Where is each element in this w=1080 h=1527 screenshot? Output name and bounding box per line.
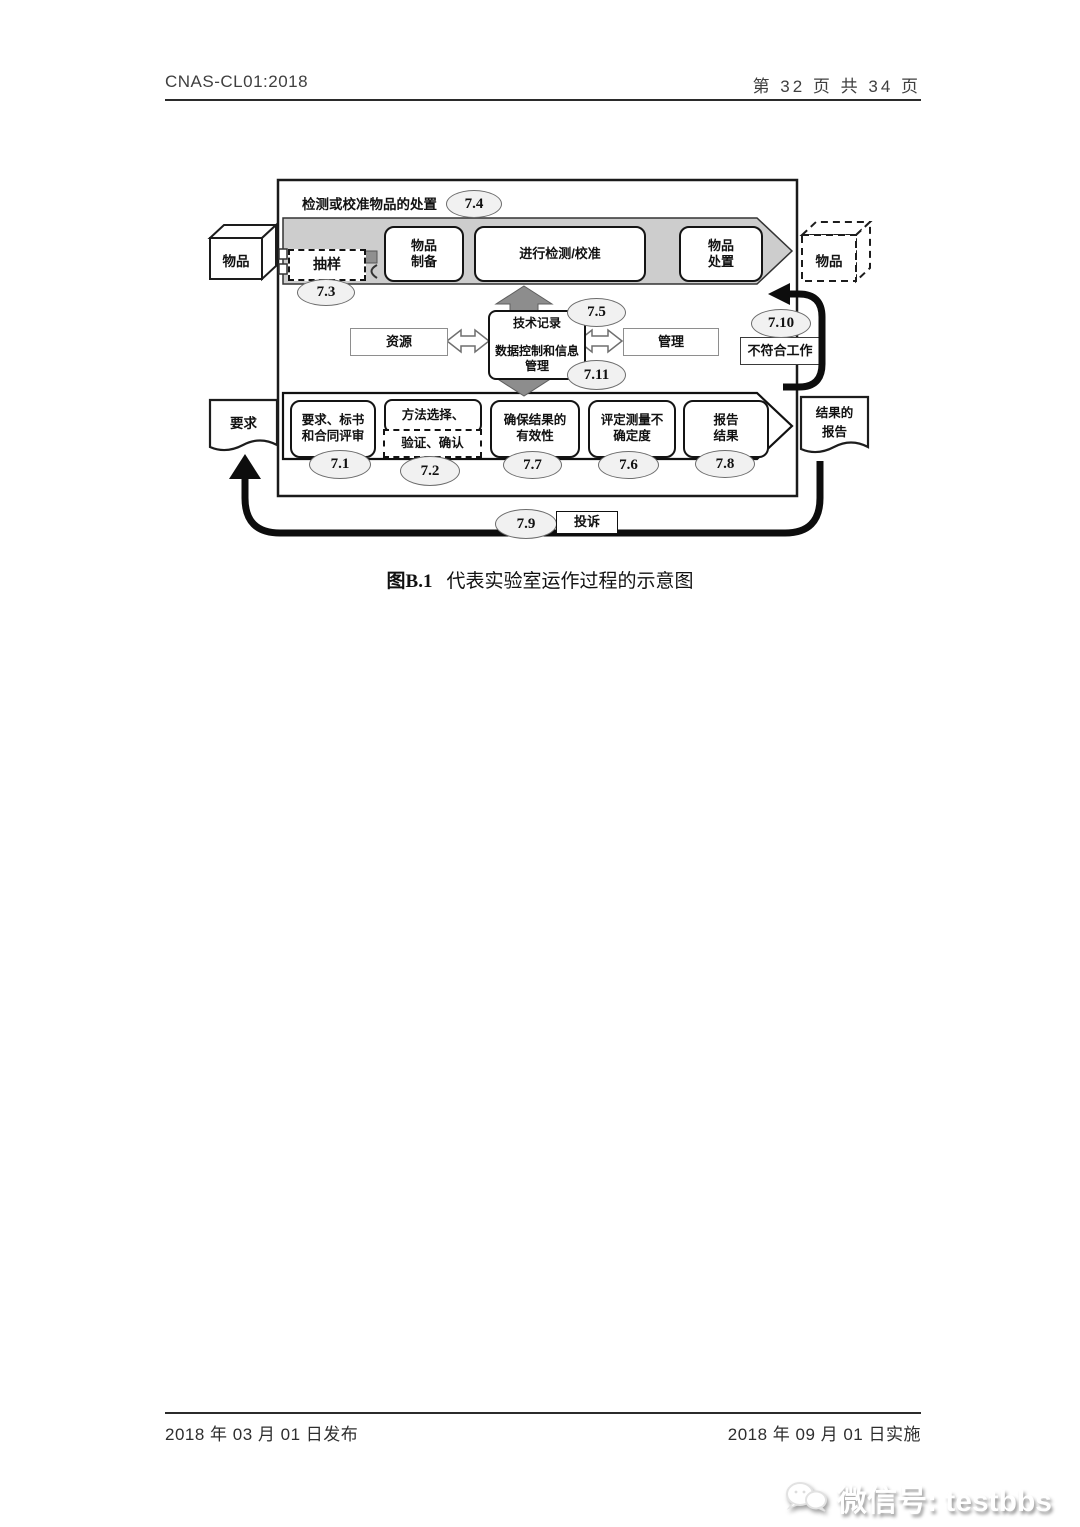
implementation-date: 2018 年 09 月 01 日实施	[165, 1420, 921, 1445]
badge-7-3: 7.3	[297, 279, 355, 306]
badge-7-1: 7.1	[309, 450, 371, 479]
item-disposal-box: 物品 处置	[679, 226, 763, 282]
badge-7-8: 7.8	[695, 450, 755, 478]
badge-7-5: 7.5	[567, 298, 626, 327]
badge-7-9: 7.9	[495, 509, 557, 539]
validity-of-results-box: 确保结果的 有效性	[490, 400, 580, 458]
nonconforming-feedback-arrowhead	[768, 283, 790, 305]
nonconforming-work-box: 不符合工作	[740, 337, 820, 365]
request-doc-label: 要求	[210, 412, 277, 432]
item-in-label: 物品	[210, 250, 262, 270]
outer-label: 检测或校准物品的处置	[302, 193, 437, 213]
page-number-info: 第 32 页 共 34 页	[165, 72, 921, 97]
measurement-uncertainty-box: 评定测量不 确定度	[588, 400, 676, 458]
management-box: 管理	[623, 328, 719, 356]
badge-7-10: 7.10	[751, 309, 811, 338]
figure-caption-number: 图B.1	[387, 571, 433, 592]
method-selection-box: 方法选择、	[384, 399, 482, 433]
feedback-loop-arrowhead	[229, 454, 261, 479]
header-rule	[165, 99, 921, 101]
resources-box: 资源	[350, 328, 448, 356]
sampling-box: 抽样	[288, 249, 366, 281]
wechat-icon	[783, 1480, 829, 1516]
sampling-notch-left-top	[279, 249, 287, 259]
complaints-box: 投诉	[556, 511, 618, 534]
sampling-bracket	[372, 265, 378, 278]
figure-caption: 图B.1代表实验室运作过程的示意图	[200, 566, 880, 593]
report-doc-label: 结果的 报告	[801, 402, 868, 440]
wechat-watermark: 微信号: testbbs	[783, 1476, 1052, 1520]
testing-calibration-box: 进行检测/校准	[474, 226, 646, 282]
badge-7-11: 7.11	[567, 360, 626, 390]
left-double-arrow	[447, 330, 489, 352]
figure-caption-title: 代表实验室运作过程的示意图	[446, 571, 693, 592]
sampling-notch-left-bottom	[279, 264, 287, 274]
badge-7-7: 7.7	[503, 451, 562, 479]
footer-rule	[165, 1412, 921, 1414]
verification-validation-box: 验证、确认	[383, 429, 482, 458]
item-out-label: 物品	[802, 250, 856, 270]
item-preparation-box: 物品 制备	[384, 226, 464, 282]
badge-7-2: 7.2	[400, 456, 460, 486]
badge-7-6: 7.6	[598, 451, 659, 479]
badge-7-4: 7.4	[446, 190, 502, 218]
wechat-watermark-text: 微信号: testbbs	[837, 1476, 1052, 1520]
